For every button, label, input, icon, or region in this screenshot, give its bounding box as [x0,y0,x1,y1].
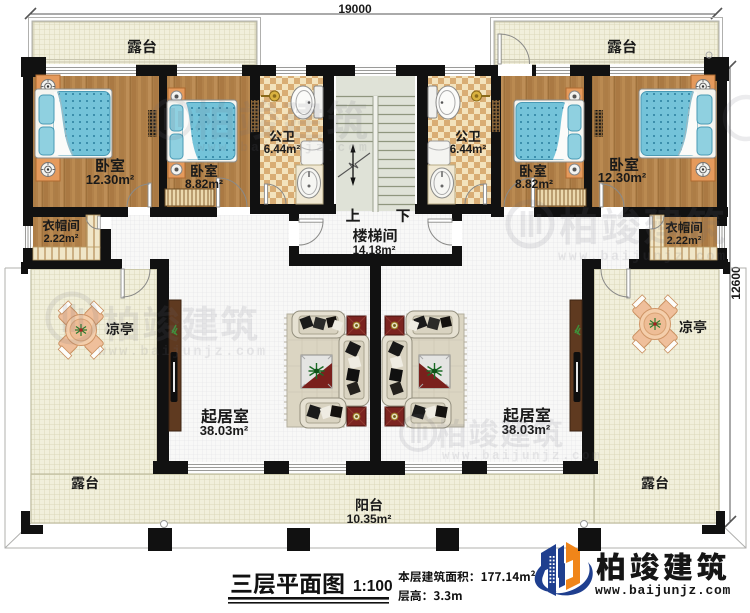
svg-text:6.44m²: 6.44m² [450,144,487,156]
svg-text:38.03m²: 38.03m² [200,423,249,438]
svg-text:12.30m²: 12.30m² [86,172,135,187]
svg-text:www.baijunjz.com: www.baijunjz.com [197,140,370,155]
svg-text:8.82m²: 8.82m² [185,177,223,191]
svg-text:www.baijunjz.com: www.baijunjz.com [595,583,731,598]
svg-text:2.22m²: 2.22m² [44,233,79,245]
svg-text:8.82m²: 8.82m² [515,177,553,191]
svg-text:www.baijunjz.com: www.baijunjz.com [442,449,602,463]
svg-text:www.baijunjz.com: www.baijunjz.com [558,250,728,265]
svg-text:14.18m²: 14.18m² [353,245,396,257]
svg-text:10.35m²: 10.35m² [347,512,392,526]
svg-text:12.30m²: 12.30m² [598,170,647,185]
svg-text:19000: 19000 [338,2,372,16]
svg-text:www.baijunjz.com: www.baijunjz.com [98,345,268,360]
svg-text:12600: 12600 [729,266,743,300]
svg-text:1:100: 1:100 [353,578,393,595]
